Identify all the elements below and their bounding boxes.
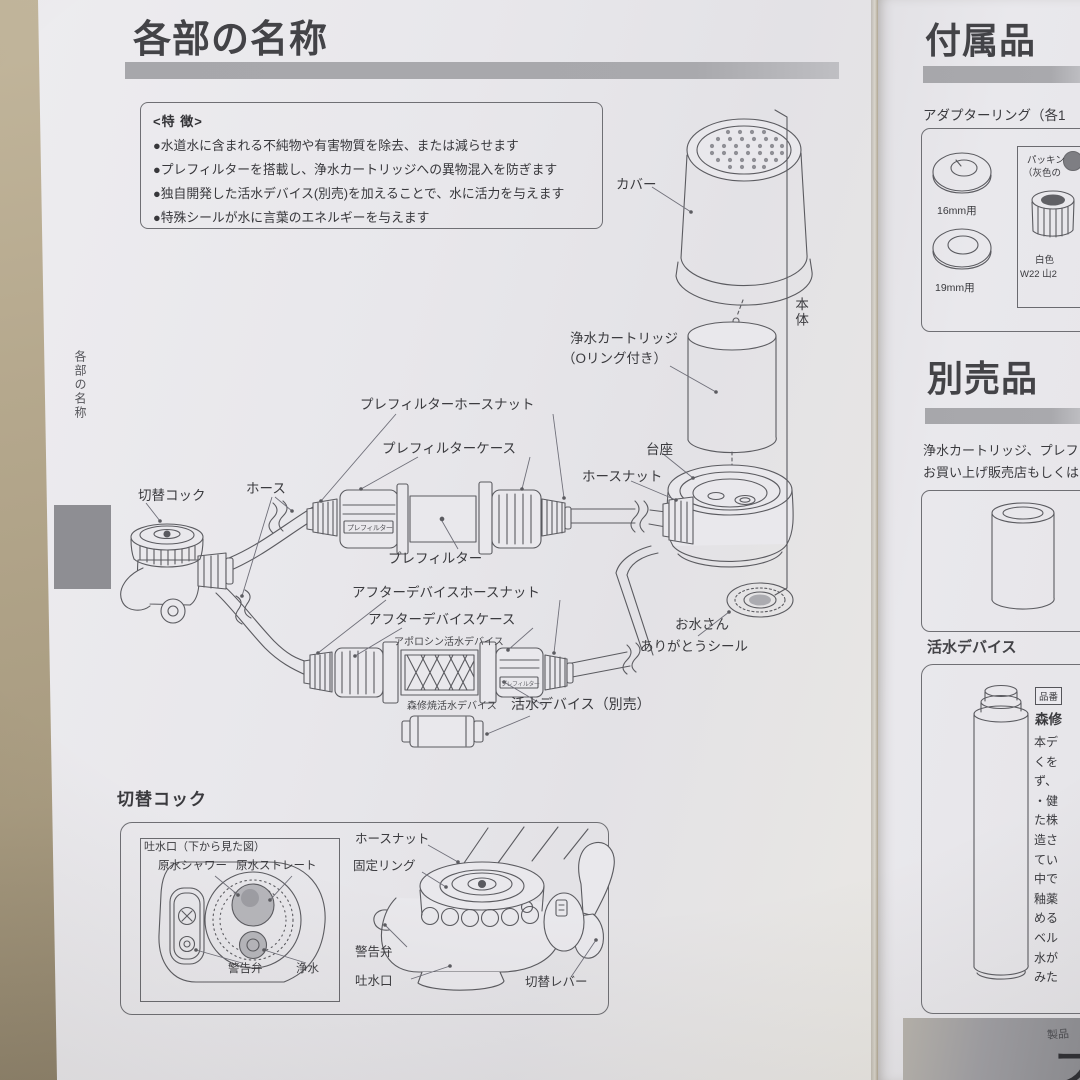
label-fixing-ring: 固定リング (353, 859, 416, 873)
feature-item: ●プレフィルターを搭載し、浄水カートリッジへの異物混入を防ぎます (153, 158, 602, 182)
cut-text-line: 本デ (1034, 733, 1058, 753)
label-after-device-case: アフターデバイスケース (368, 612, 515, 627)
label-hose-nut: ホースナット (582, 469, 662, 484)
label-warning-valve-side: 警告弁 (355, 945, 393, 959)
label-hose-nut-side: ホースナット (355, 832, 429, 846)
nut-size-label: W22 山2 (1020, 266, 1057, 280)
label-warning-valve-bottom: 警告弁 (228, 963, 263, 976)
cut-text-line: 水が (1034, 949, 1058, 969)
label-prefilter-case: プレフィルターケース (382, 441, 516, 456)
cut-text-line: くを (1034, 753, 1058, 773)
footer-band: 製品 フ (903, 1018, 1080, 1080)
prefilter-case-marking: プレフィルター (347, 523, 392, 533)
label-raw-shower: 原水シャワー (158, 860, 227, 873)
cut-text-line: ベル (1034, 929, 1058, 949)
ring-19mm-label: 19mm用 (935, 280, 975, 295)
label-switch-cock: 切替コック (138, 488, 206, 503)
label-after-device-hose-nut: アフターデバイスホースナット (352, 585, 540, 600)
optional-text-line1: 浄水カートリッジ、プレフィ (923, 440, 1080, 459)
features-box: <特 徴> ●水道水に含まれる不純物や有害物質を除去、または減らせます ●プレフ… (140, 102, 603, 229)
packing-label-line1: パッキン (1027, 152, 1065, 166)
optional-text-line2: お買い上げ販売店もしくは (923, 462, 1079, 481)
cut-text-line: 造さ (1034, 831, 1058, 851)
label-spout: 吐水口 (355, 974, 393, 988)
device-description-cut-text: 本デ くを ず、 ・健 た株 造さ てい 中で 釉薬 める ベル 水が みた (1034, 733, 1058, 988)
feature-item: ●特殊シールが水に言葉のエネルギーを与えます (153, 206, 602, 230)
feature-item: ●独自開発した活水デバイス(別売)を加えることで、水に活力を与えます (153, 182, 602, 206)
features-heading: <特 徴> (153, 111, 602, 130)
label-cartridge: 浄水カートリッジ (570, 331, 678, 346)
packing-label-line2: （灰色の (1023, 165, 1061, 179)
nut-white-label: 白色 (1035, 252, 1054, 266)
footer-large-text: フ (1053, 1036, 1080, 1080)
feature-item: ●水道水に含まれる不純物や有害物質を除去、または減らせます (153, 134, 602, 158)
label-base: 台座 (646, 442, 673, 457)
part-number-badge: 品番 (1035, 687, 1062, 705)
label-cartridge-note: （Oリング付き） (562, 351, 667, 366)
side-index-tab (54, 505, 111, 589)
adapter-ring-subtitle: アダプターリング（各1 (923, 104, 1066, 124)
cut-text-line: 中で (1034, 870, 1058, 890)
after-device-case-marking: プレフィルター (501, 679, 539, 688)
side-index-label: 各部の名称 (72, 350, 89, 420)
label-shinshuyaki-device: 森修焼活水デバイス (407, 701, 497, 712)
cut-text-line: ず、 (1034, 772, 1058, 792)
photo-of-manual: { "colors": { "table_surface": "#b3a68c"… (0, 0, 1080, 1080)
cut-text-line: 釉薬 (1034, 890, 1058, 910)
cut-text-line: てい (1034, 851, 1058, 871)
device-brand: 森修 (1035, 708, 1062, 728)
label-prefilter-hose-nut: プレフィルターホースナット (360, 397, 535, 412)
manual-right-page: 付属品 アダプターリング（各1 (877, 0, 1080, 1080)
ring-16mm-label: 16mm用 (937, 203, 977, 218)
label-cover: カバー (616, 177, 657, 192)
label-purified-water: 浄水 (296, 963, 319, 976)
bottom-view-title: 吐水口（下から見た図） (144, 841, 265, 853)
label-raw-straight: 原水ストレート (236, 860, 317, 873)
label-seal-line1: お水さん (675, 617, 729, 632)
manual-left-page: 各部の名称 各部の名称 <特 徴> ●水道水に含まれる不純物や有害物質を除去、ま… (30, 0, 876, 1080)
label-prefilter: プレフィルター (388, 551, 482, 566)
label-main-body: 本体 (793, 297, 808, 328)
label-switch-lever: 切替レバー (525, 975, 588, 989)
cut-text-line: ・健 (1034, 792, 1058, 812)
label-apolloshin-device: アポロシン活水デバイス (394, 637, 504, 648)
cut-text-line: た株 (1034, 811, 1058, 831)
label-hose: ホース (246, 481, 286, 496)
label-seal-line2: ありがとうシール (640, 639, 748, 654)
cut-text-line: みた (1034, 968, 1058, 988)
cut-text-line: める (1034, 909, 1058, 929)
label-kassui-device: 活水デバイス（別売） (511, 697, 651, 713)
